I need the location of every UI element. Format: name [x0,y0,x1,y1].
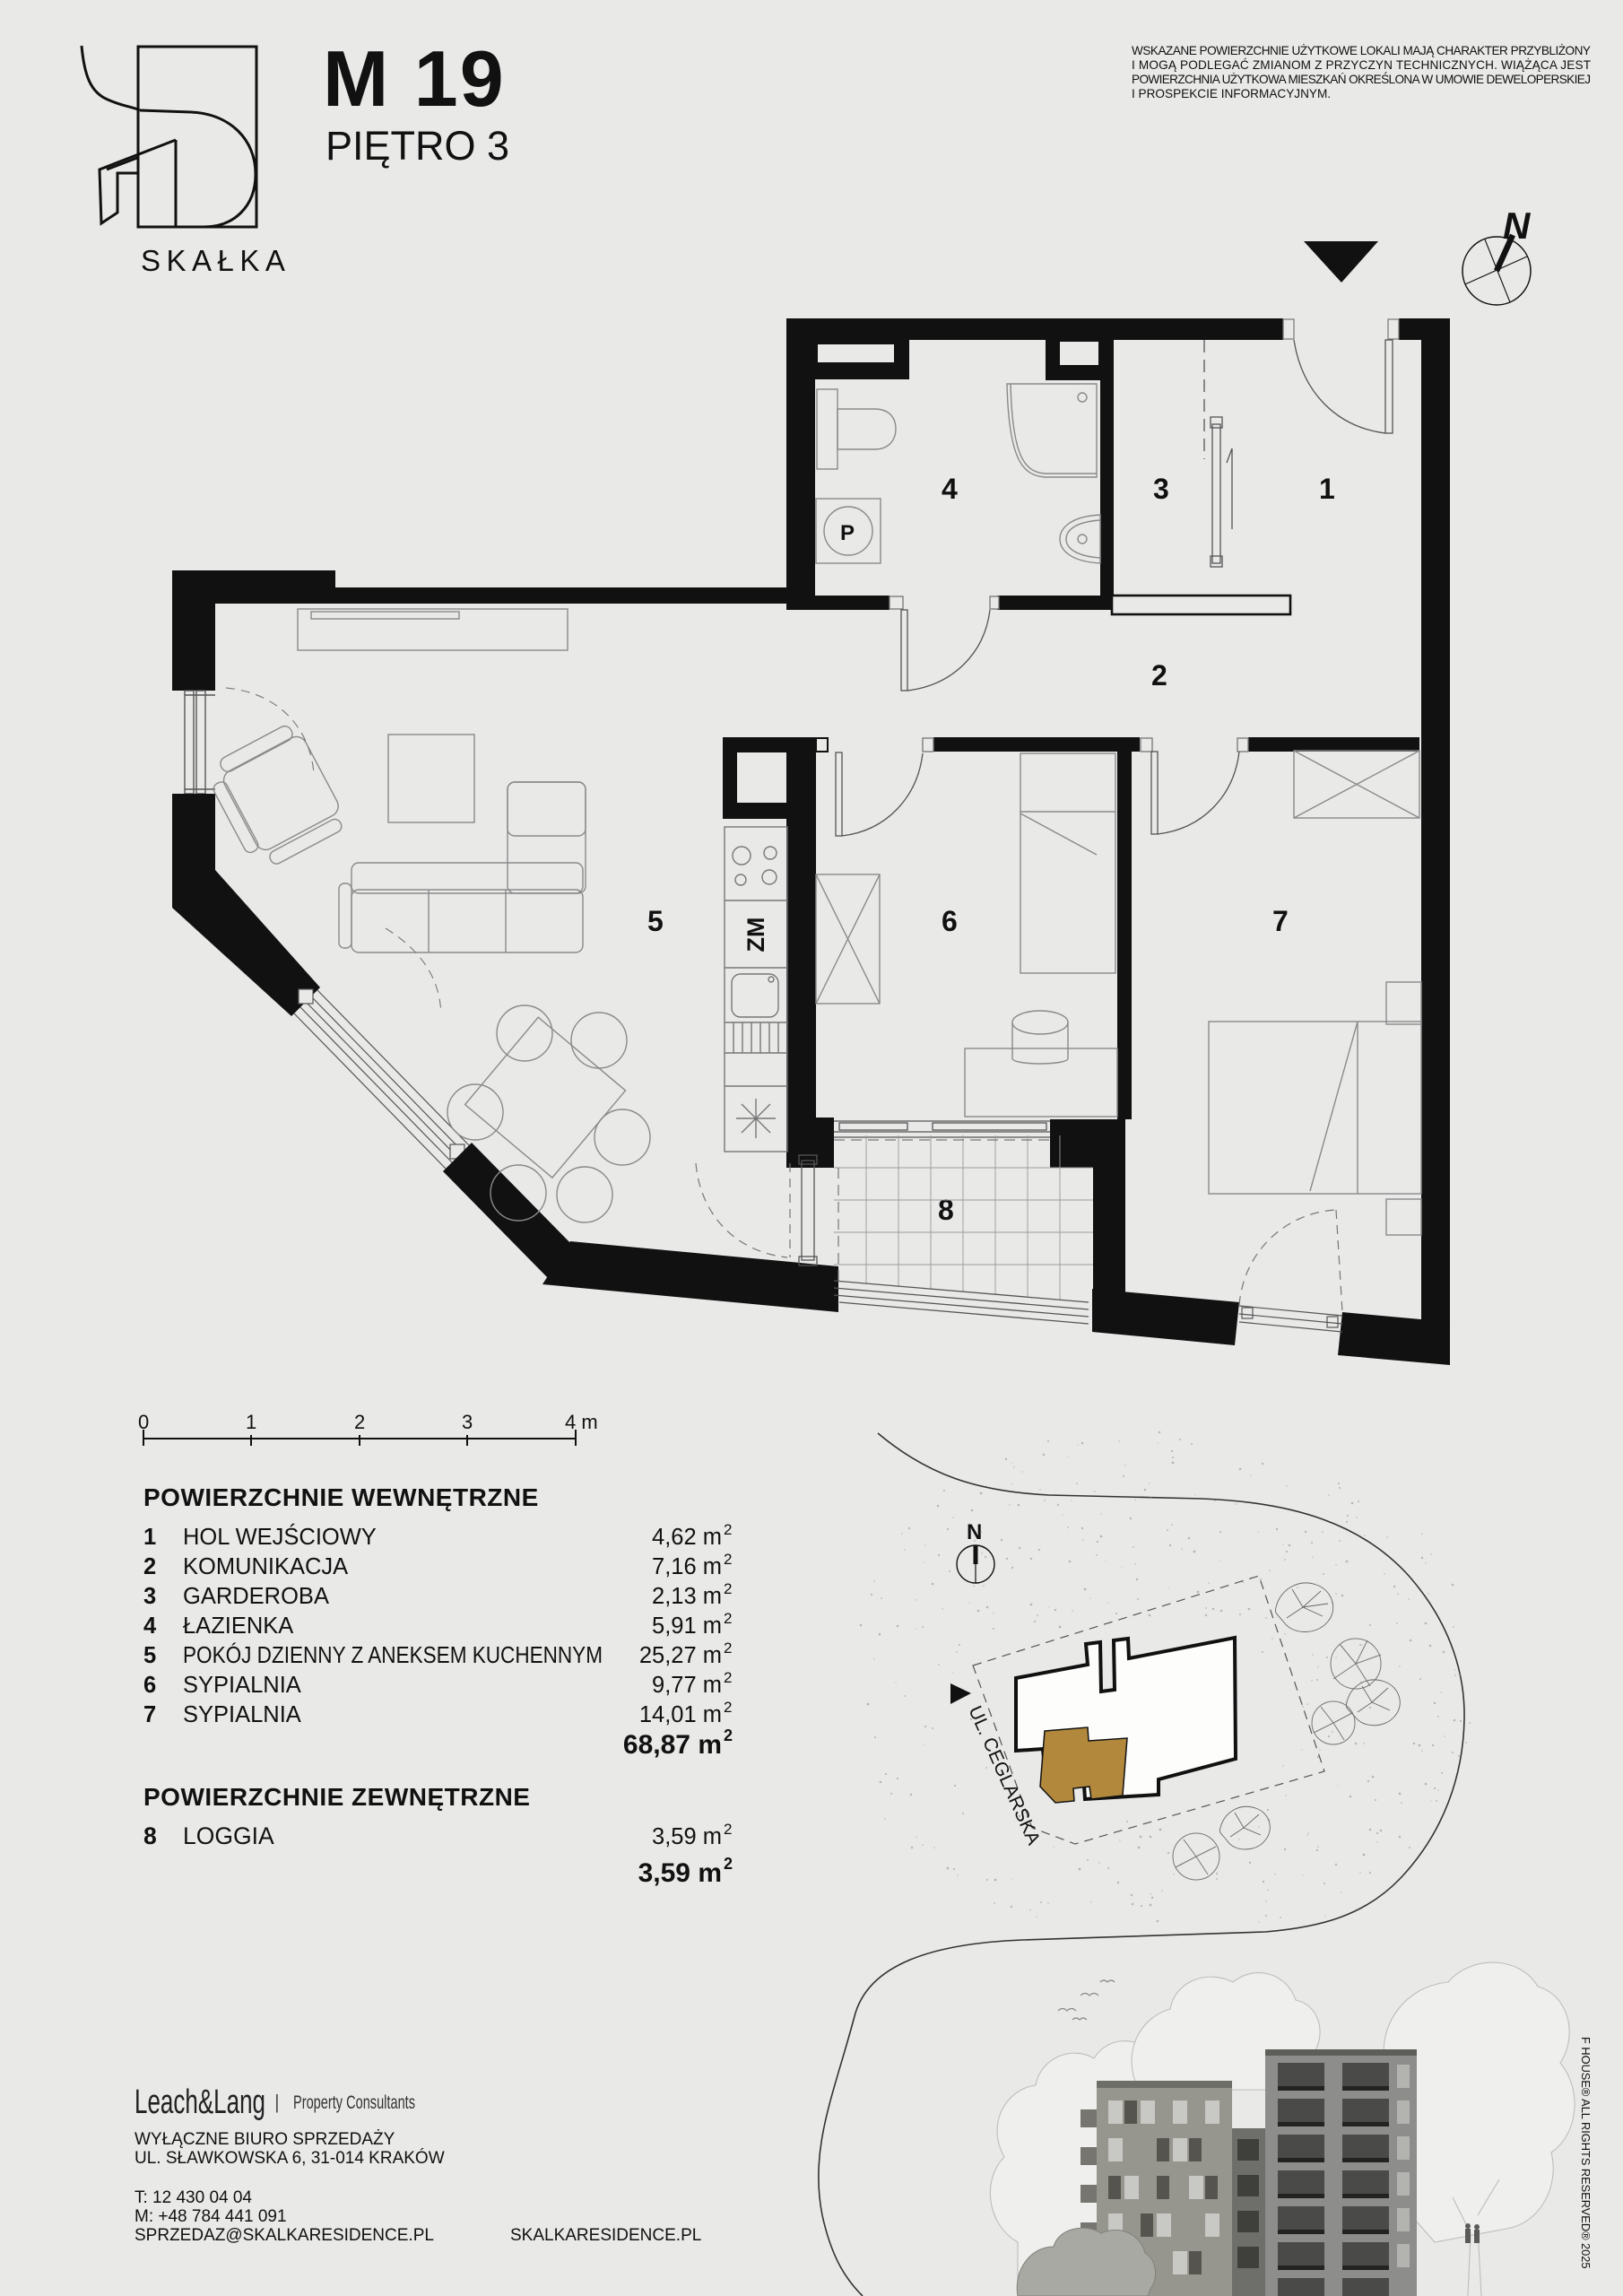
svg-text:2,13 m: 2,13 m [652,1584,722,1609]
svg-text:2: 2 [724,1821,732,1838]
svg-text:2: 2 [724,1726,733,1744]
svg-text:5,91 m: 5,91 m [652,1613,722,1639]
svg-text:1: 1 [1319,473,1335,505]
svg-text:WSKAZANE POWIERZCHNIE UŻYTKOWE: WSKAZANE POWIERZCHNIE UŻYTKOWE LOKALI MA… [1132,44,1591,57]
svg-text:|: | [274,2091,280,2113]
svg-text:3,59 m: 3,59 m [652,1824,722,1849]
svg-text:N: N [1503,204,1532,247]
svg-text:2: 2 [354,1411,365,1433]
svg-text:5: 5 [143,1643,156,1668]
svg-text:4: 4 [942,473,958,505]
svg-text:2: 2 [143,1554,156,1579]
svg-text:2: 2 [724,1521,732,1538]
svg-text:UL. SŁAWKOWSKA 6, 31-014 KRAKÓ: UL. SŁAWKOWSKA 6, 31-014 KRAKÓW [135,2148,445,2168]
svg-text:LOGGIA: LOGGIA [183,1822,274,1849]
svg-text:2: 2 [724,1669,732,1686]
svg-text:14,01 m: 14,01 m [639,1702,722,1727]
svg-text:6: 6 [942,905,958,937]
svg-text:3: 3 [143,1584,156,1609]
svg-text:GARDEROBA: GARDEROBA [183,1584,329,1609]
svg-text:Leach&Lang: Leach&Lang [135,2083,265,2121]
svg-text:I PROSPEKCIE INFORMACYJNYM.: I PROSPEKCIE INFORMACYJNYM. [1132,87,1331,100]
svg-text:2: 2 [1151,659,1167,691]
svg-text:4,62 m: 4,62 m [652,1525,722,1550]
svg-text:POWIERZCHNIA UŻYTKOWA MIESZKAŃ: POWIERZCHNIA UŻYTKOWA MIESZKAŃ OKREŚLONA… [1132,73,1591,86]
svg-text:1: 1 [143,1525,156,1550]
svg-text:Property Consultants: Property Consultants [293,2092,415,2113]
svg-text:M 19: M 19 [323,34,506,123]
svg-text:7,16 m: 7,16 m [652,1554,722,1579]
svg-text:F HOUSE® ALL RIGHTS RESERVED®: F HOUSE® ALL RIGHTS RESERVED® 2025 [1579,2037,1593,2269]
svg-text:M: +48 784 441 091: M: +48 784 441 091 [135,2207,287,2226]
svg-text:2: 2 [724,1699,732,1716]
svg-text:SYPIALNIA: SYPIALNIA [183,1702,301,1727]
svg-text:POKÓJ DZIENNY Z ANEKSEM KUCHEN: POKÓJ DZIENNY Z ANEKSEM KUCHENNYM [183,1642,603,1668]
svg-text:SKAŁKA: SKAŁKA [141,244,291,277]
svg-text:I MOGĄ PODLEGAĆ ZMIANOM Z PRZY: I MOGĄ PODLEGAĆ ZMIANOM Z PRZYCZYN TECHN… [1132,58,1591,72]
svg-text:T: 12 430 04 04: T: 12 430 04 04 [135,2188,252,2207]
svg-text:2: 2 [724,1551,732,1568]
svg-text:8: 8 [143,1822,157,1849]
svg-text:POWIERZCHNIE WEWNĘTRZNE: POWIERZCHNIE WEWNĘTRZNE [143,1483,539,1511]
svg-text:9,77 m: 9,77 m [652,1673,722,1698]
svg-text:0: 0 [138,1411,149,1433]
svg-text:5: 5 [647,905,664,937]
svg-text:POWIERZCHNIE ZEWNĘTRZNE: POWIERZCHNIE ZEWNĘTRZNE [143,1783,531,1811]
svg-text:7: 7 [1272,905,1289,937]
svg-text:P: P [840,521,855,545]
svg-text:7: 7 [143,1702,156,1727]
svg-text:HOL WEJŚCIOWY: HOL WEJŚCIOWY [183,1523,377,1550]
svg-text:ŁAZIENKA: ŁAZIENKA [183,1613,293,1639]
svg-text:4: 4 [143,1613,157,1639]
svg-text:6: 6 [143,1673,156,1698]
svg-text:2: 2 [724,1580,732,1597]
svg-text:25,27 m: 25,27 m [639,1643,722,1668]
svg-text:KOMUNIKACJA: KOMUNIKACJA [183,1554,348,1579]
svg-text:3: 3 [462,1411,473,1433]
svg-text:SYPIALNIA: SYPIALNIA [183,1673,301,1698]
svg-text:SPRZEDAZ@SKALKARESIDENCE.PL: SPRZEDAZ@SKALKARESIDENCE.PL [135,2226,434,2245]
svg-text:1: 1 [246,1411,256,1433]
svg-text:ZM: ZM [742,918,769,952]
svg-text:8: 8 [938,1194,954,1226]
svg-text:4 m: 4 m [565,1411,598,1433]
svg-text:3: 3 [1153,473,1169,505]
svg-text:PIĘTRO 3: PIĘTRO 3 [325,123,509,169]
svg-text:2: 2 [724,1855,733,1873]
svg-text:WYŁĄCZNE BIURO SPRZEDAŻY: WYŁĄCZNE BIURO SPRZEDAŻY [135,2130,395,2149]
svg-text:68,87 m: 68,87 m [623,1730,722,1760]
svg-text:2: 2 [724,1610,732,1627]
svg-text:SKALKARESIDENCE.PL: SKALKARESIDENCE.PL [510,2226,701,2245]
svg-text:3,59 m: 3,59 m [638,1858,722,1888]
svg-text:2: 2 [724,1639,732,1657]
